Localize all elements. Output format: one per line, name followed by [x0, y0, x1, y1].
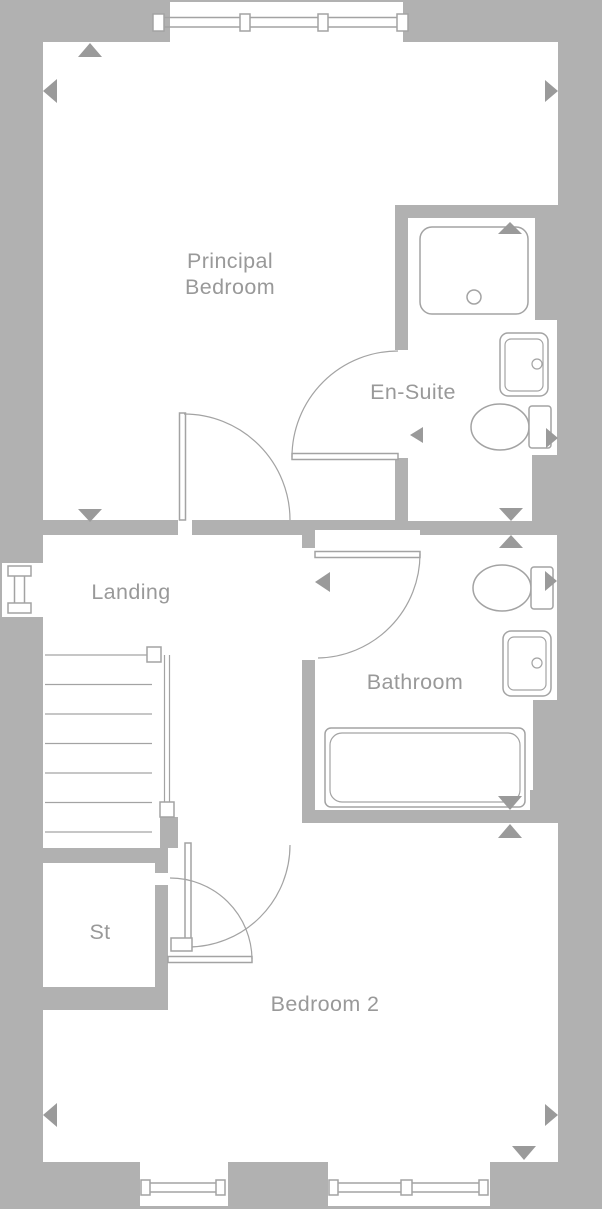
window-mullion: [8, 566, 31, 576]
bathtub-outer: [325, 728, 525, 807]
window-mullion: [318, 14, 328, 31]
window-mullion: [8, 603, 31, 613]
room-areas: [2, 2, 558, 1206]
window-mullion: [216, 1180, 225, 1195]
wall-right-of-bath: [530, 790, 550, 823]
toilet-bowl: [473, 565, 531, 611]
window-mullion: [397, 14, 408, 31]
bathtub: [325, 728, 525, 807]
shower-tray: [420, 227, 528, 314]
shower-tray-outline: [420, 227, 528, 314]
wall-corridor-stub: [160, 817, 178, 848]
toilet-cistern: [531, 567, 553, 609]
toilet-bathroom: [473, 565, 553, 611]
toilet-bowl: [471, 404, 529, 450]
window-mullion: [153, 14, 164, 31]
label-landing: Landing: [91, 580, 170, 604]
door-threshold: [171, 938, 192, 951]
washbasin-en-suite: [500, 333, 548, 396]
window-mullion: [479, 1180, 488, 1195]
window-bottom-left-opening: [140, 1162, 228, 1206]
label-en-suite: En-Suite: [370, 380, 456, 404]
bathroom-doorway-gap: [302, 548, 315, 660]
toilet-en-suite: [471, 404, 551, 450]
label-storage: St: [89, 920, 110, 944]
wall-stairs-bottom: [43, 848, 168, 863]
window-mullion: [141, 1180, 150, 1195]
newel-post-top: [147, 647, 161, 662]
label-principal-bedroom-line1: Principal: [187, 249, 273, 273]
door-leaf: [315, 552, 420, 558]
bedroom-door-jamb: [178, 520, 192, 535]
washbasin-bathroom: [503, 631, 551, 696]
window-top-opening: [170, 2, 403, 43]
door-leaf: [185, 843, 191, 947]
label-principal-bedroom-line2: Bedroom: [185, 275, 275, 299]
door-leaf: [168, 957, 252, 963]
window-mullion: [401, 1180, 412, 1195]
wall-storage-bottom: [43, 987, 168, 1010]
window-mullion: [240, 14, 250, 31]
basin-outer: [500, 333, 548, 396]
basin-outer: [503, 631, 551, 696]
door-leaf: [180, 413, 186, 520]
door-leaf: [292, 454, 398, 460]
newel-post-bottom: [160, 802, 174, 817]
label-bathroom: Bathroom: [367, 670, 463, 694]
label-bedroom-2: Bedroom 2: [271, 992, 380, 1016]
floor-plan: Principal Bedroom En-Suite Landing Bathr…: [0, 0, 602, 1209]
window-mullion: [329, 1180, 338, 1195]
storage-door-jamb: [155, 873, 168, 885]
